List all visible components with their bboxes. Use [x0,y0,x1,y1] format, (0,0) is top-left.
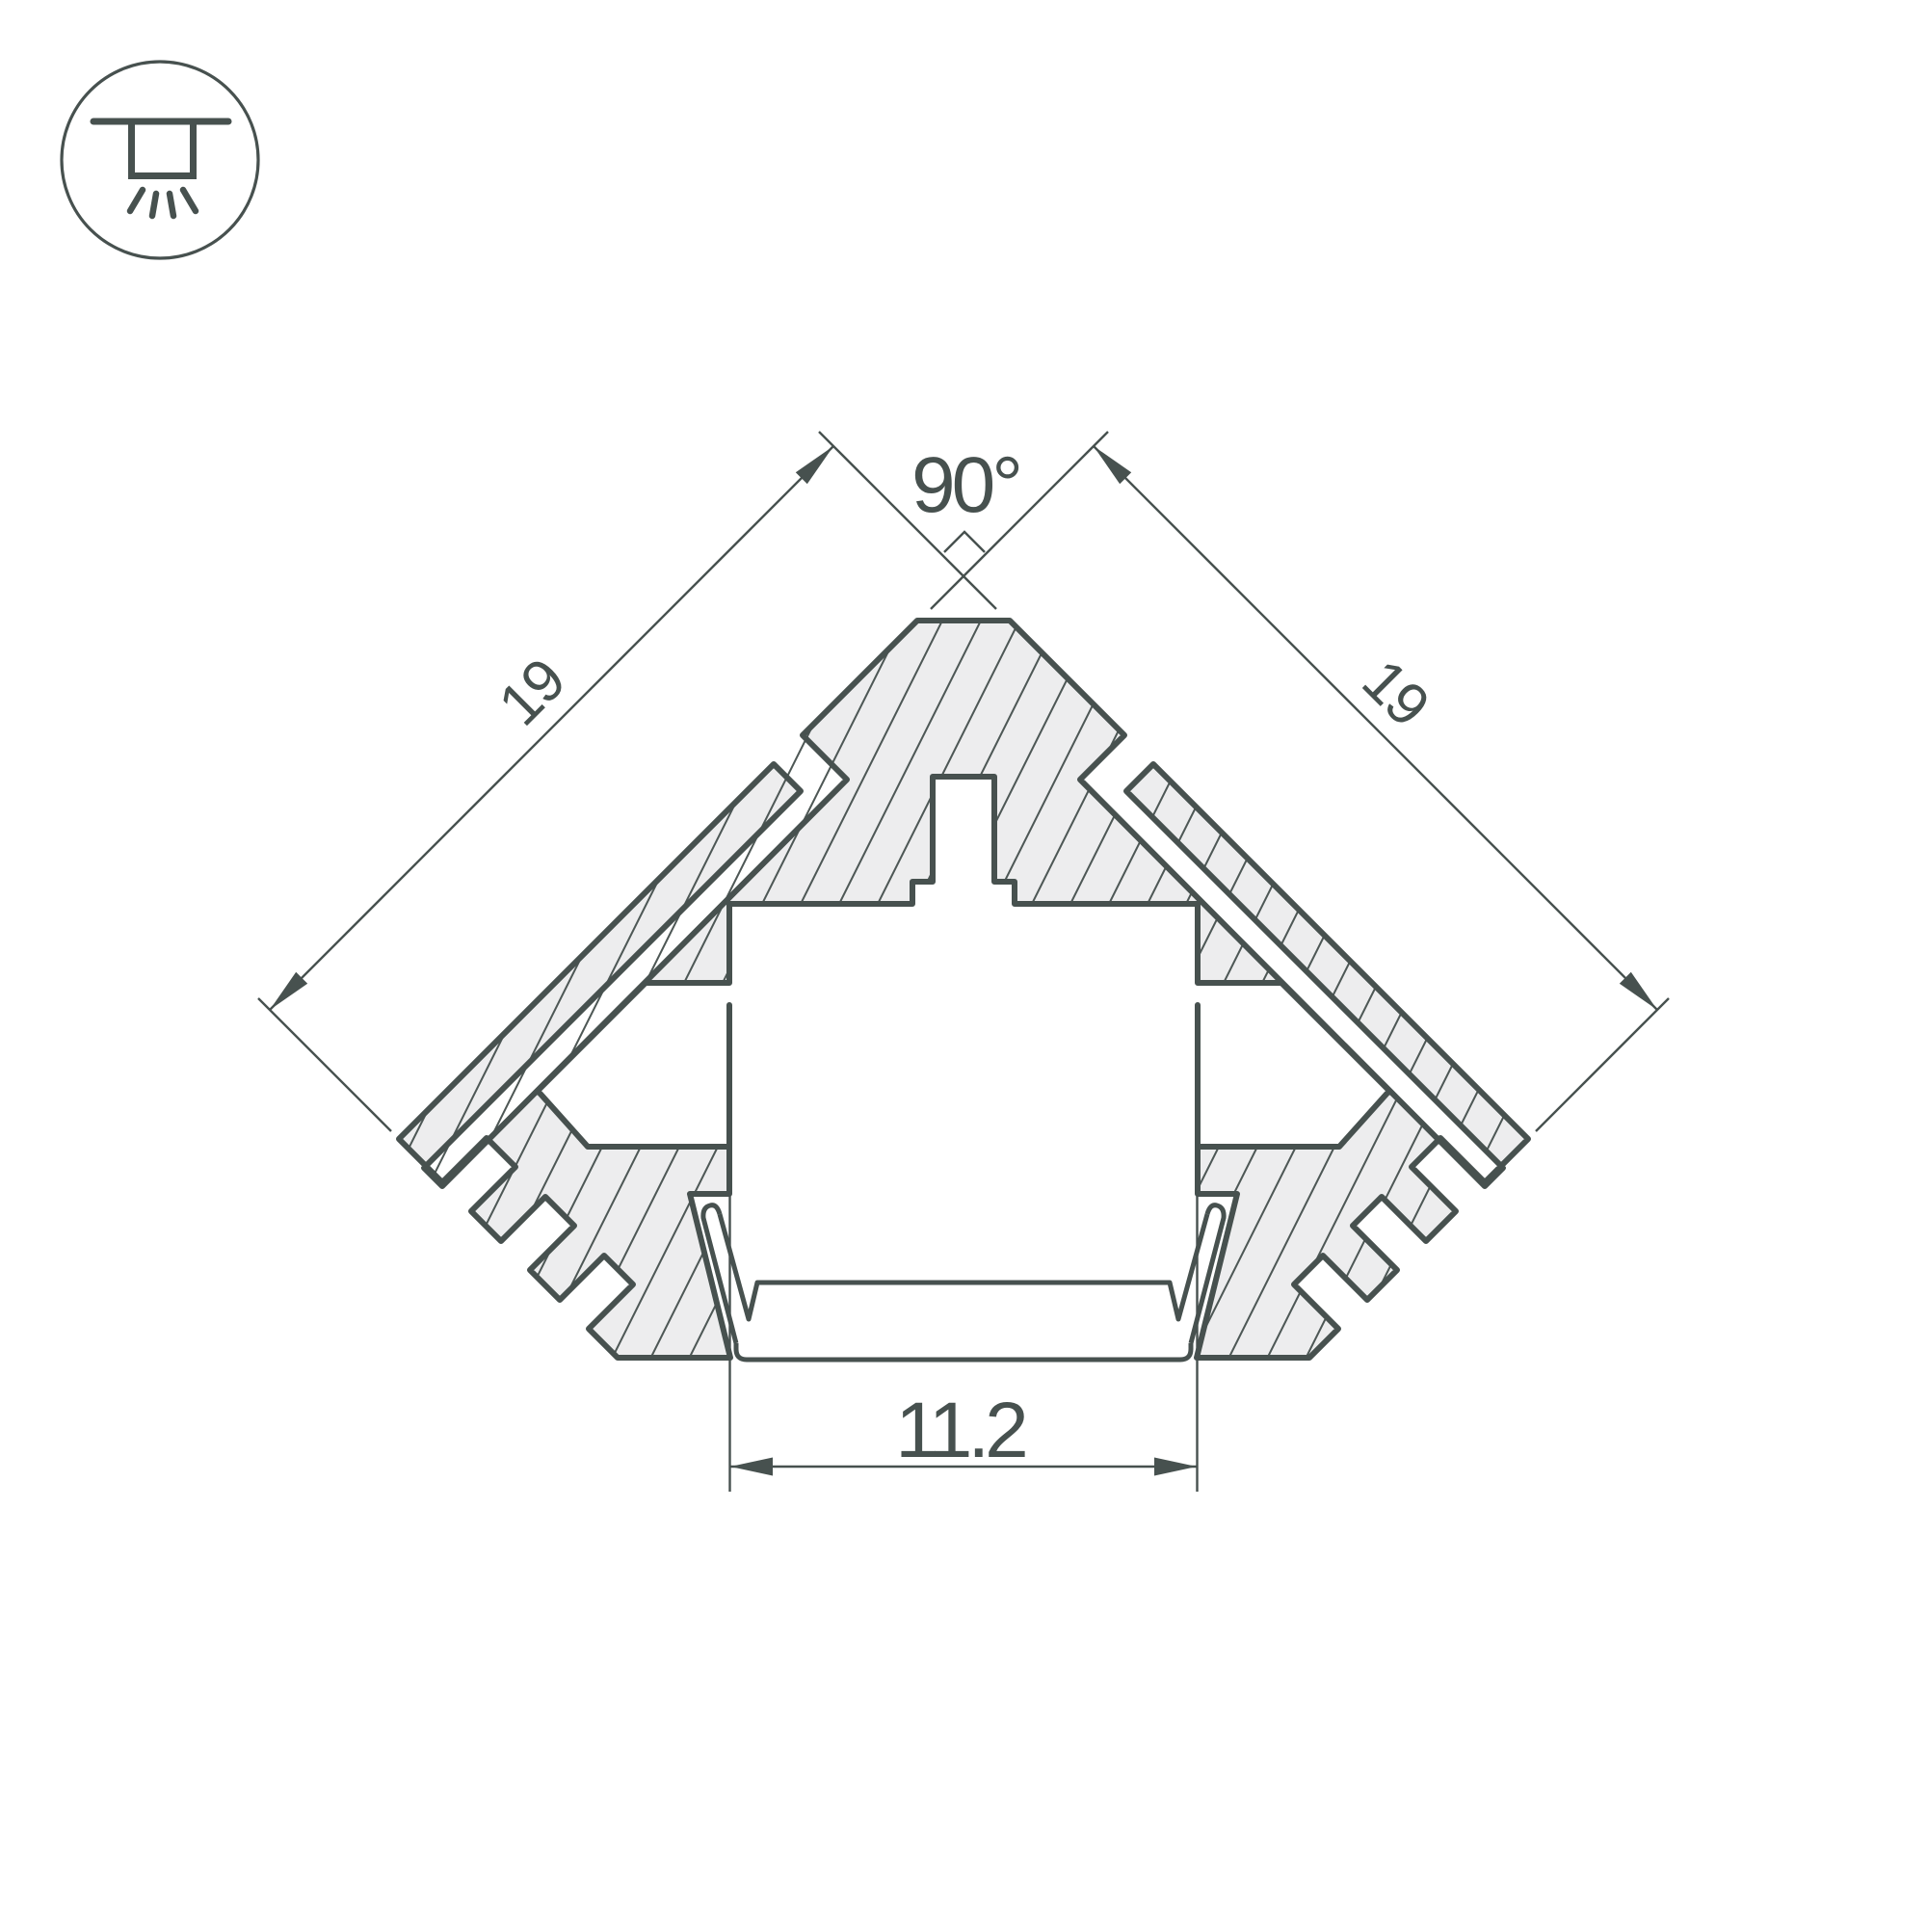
svg-text:90°: 90° [911,441,1019,529]
svg-text:11.2: 11.2 [895,1387,1025,1474]
svg-text:19: 19 [1350,648,1441,739]
svg-text:19: 19 [487,648,578,739]
